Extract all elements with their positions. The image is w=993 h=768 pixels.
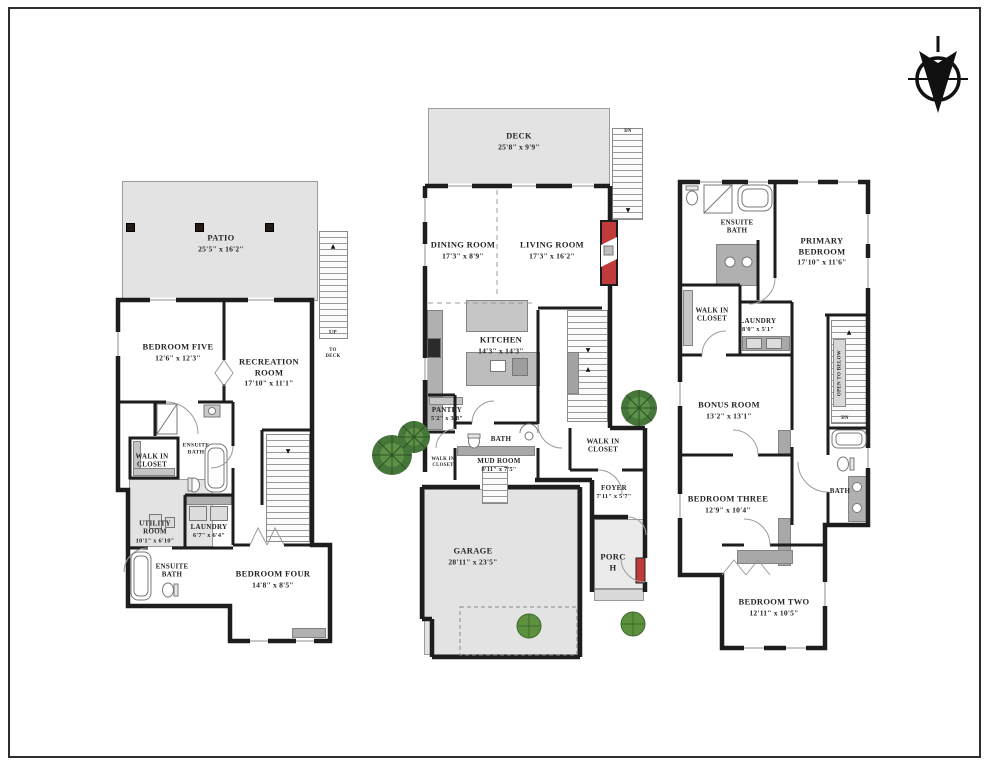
room-label-recreation-room: RECREATION ROOM 17'10" x 11'1" <box>228 356 310 387</box>
stair-note-to-deck: TO DECK <box>323 348 343 360</box>
room-label-mud-room: MUD ROOM 8'11" x 7'5" <box>464 457 534 473</box>
down-arrow-icon: ▼ <box>626 208 631 214</box>
room-label-pantry: PANTRY 5'2" x 3'8" <box>424 406 470 422</box>
down-arrow-icon: ▼ <box>286 449 291 455</box>
room-label-porch: PORCH <box>597 551 629 572</box>
room-label-foyer: FOYER 7'11" x 5'7" <box>589 484 639 500</box>
room-label-bedroom-two: BEDROOM TWO 12'11" x 10'5" <box>719 597 829 618</box>
room-label-utility-room: UTILITY ROOM 10'1" x 6'10" <box>133 520 177 545</box>
room-label-dining-room: DINING ROOM 17'3" x 8'9" <box>417 240 509 261</box>
basement-walls <box>118 300 312 548</box>
room-label-primary-bedroom: PRIMARY BEDROOM 17'10" x 11'6" <box>786 235 858 266</box>
up-arrow-icon: ▲ <box>331 244 336 250</box>
open-to-below-label: OPEN TO BELOW <box>837 350 842 396</box>
north-arrow-icon <box>908 36 968 113</box>
room-label-walk-in-closet-left: WALK IN CLOSET <box>431 457 455 469</box>
tree-icon <box>621 390 657 426</box>
room-label-kitchen: KITCHEN 14'3" x 14'3" <box>456 335 546 356</box>
room-label-walk-in-closet-right: WALK IN CLOSET <box>579 438 627 455</box>
stair-label-dn-upper: DN <box>835 416 855 422</box>
front-door <box>636 558 645 583</box>
floor-plan-page: OPEN TO BELOW PATIO 25'5" x 16'2" BEDROO… <box>0 0 993 768</box>
room-label-bedroom-four: BEDROOM FOUR 14'8" x 8'5" <box>213 569 333 590</box>
room-label-patio: PATIO 25'5" x 16'2" <box>161 233 281 254</box>
room-label-garage: GARAGE 28'11" x 23'5" <box>418 546 528 567</box>
room-label-bedroom-five: BEDROOM FIVE 12'6" x 12'3" <box>123 342 233 363</box>
room-label-ensuite-bath-upper: ENSUITE BATH <box>712 219 762 236</box>
room-label-bath-upper: BATH <box>823 487 857 495</box>
open-to-below-box: OPEN TO BELOW <box>833 339 846 407</box>
room-label-ensuite-bath-mid: ENSUITE BATH <box>178 442 214 455</box>
tree-icon <box>372 421 430 475</box>
room-label-living-room: LIVING ROOM 17'3" x 16'2" <box>502 240 602 261</box>
room-label-bedroom-three: BEDROOM THREE 12'9" x 10'4" <box>673 494 783 515</box>
room-label-laundry-upper: LAUNDRY 8'0" x 5'1" <box>732 317 784 333</box>
room-label-bonus-room: BONUS ROOM 13'2" x 13'1" <box>679 400 779 421</box>
stair-label-up: UP <box>323 330 343 337</box>
room-label-bath: BATH <box>483 435 519 443</box>
room-label-ensuite-bath-lower: ENSUITE BATH <box>148 563 196 580</box>
up-arrow-icon: ▲ <box>586 367 591 373</box>
fireplace-icon <box>601 221 617 285</box>
room-label-laundry: LAUNDRY 6'7" x 6'4" <box>181 523 237 539</box>
room-label-walk-in-closet: WALK IN CLOSET <box>128 453 176 470</box>
down-arrow-icon: ▼ <box>586 348 591 354</box>
up-arrow-icon: ▲ <box>847 330 852 336</box>
stair-label-dn-deck: DN <box>618 129 638 135</box>
room-label-deck: DECK 25'8" x 9'9" <box>464 131 574 152</box>
room-label-walk-in-closet-upper: WALK IN CLOSET <box>688 307 736 324</box>
